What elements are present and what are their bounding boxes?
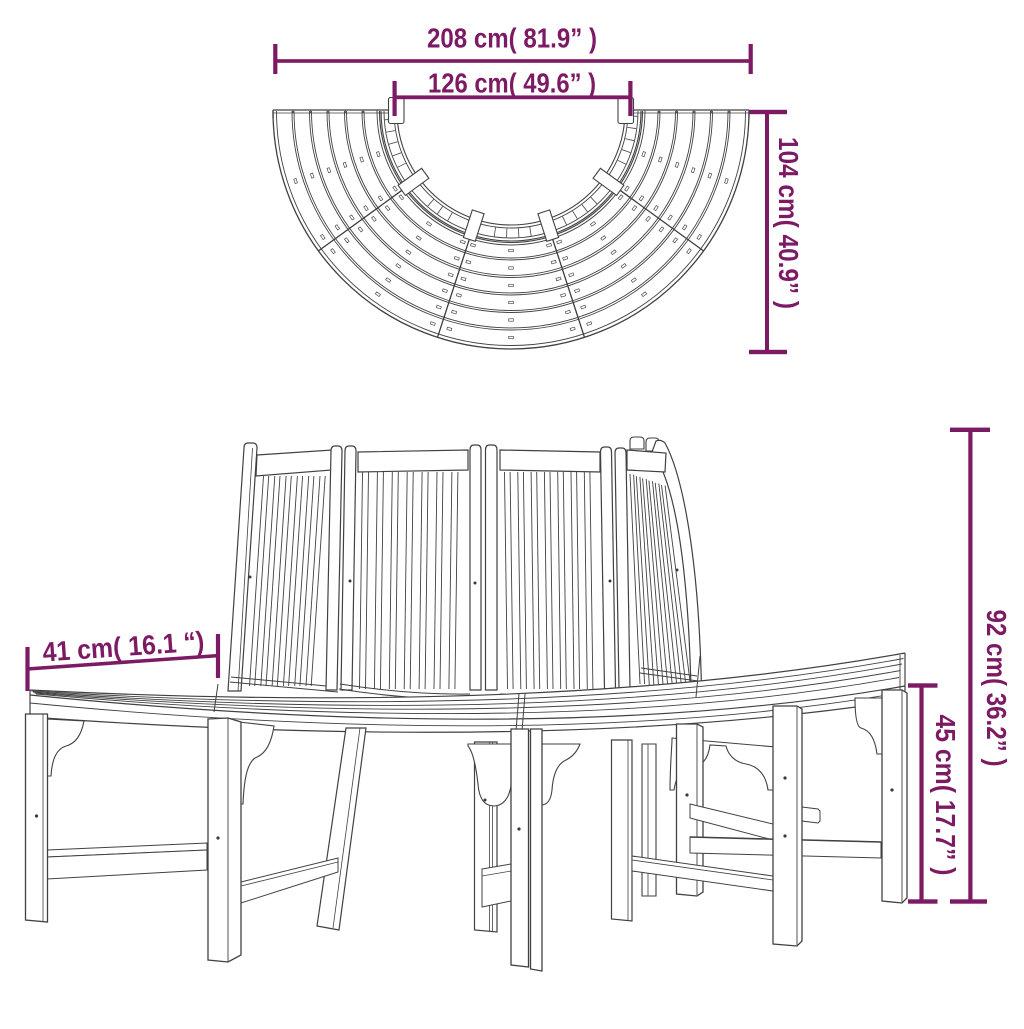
svg-text:104 cm( 40.9” ): 104 cm( 40.9” ) xyxy=(773,137,804,309)
svg-text:92 cm( 36.2” ): 92 cm( 36.2” ) xyxy=(981,610,1012,767)
svg-text:126 cm( 49.6” ): 126 cm( 49.6” ) xyxy=(428,68,596,99)
svg-text:208 cm( 81.9” ): 208 cm( 81.9” ) xyxy=(427,23,597,54)
svg-text:45 cm( 17.7” ): 45 cm( 17.7” ) xyxy=(930,715,961,876)
